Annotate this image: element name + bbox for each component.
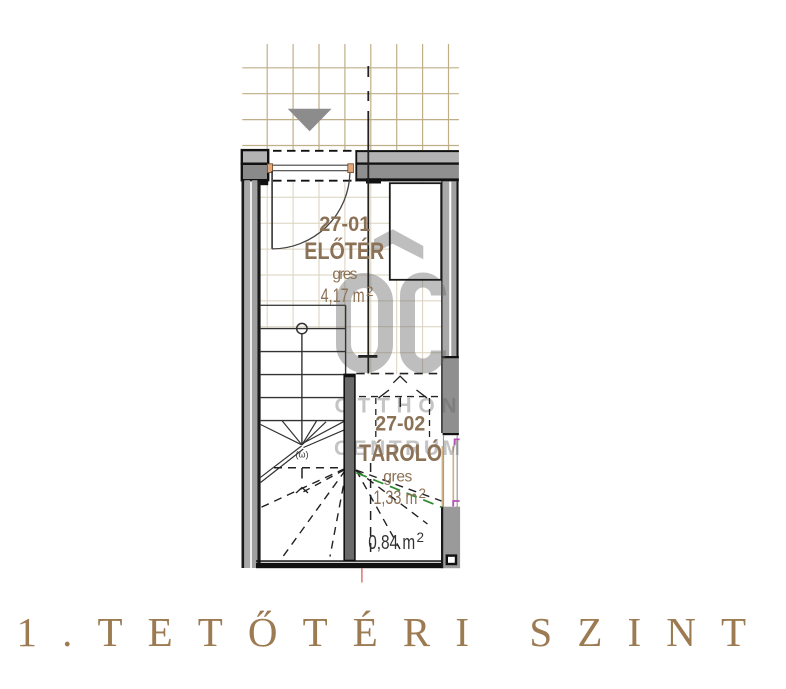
svg-text:0,84 m: 0,84 m	[368, 531, 415, 554]
svg-text:2: 2	[417, 530, 425, 545]
svg-text:(ω): (ω)	[295, 450, 308, 460]
svg-text:4,17 m: 4,17 m	[321, 285, 365, 307]
svg-text:1,33 m: 1,33 m	[373, 487, 417, 509]
svg-text:2: 2	[366, 284, 374, 299]
svg-text:gres: gres	[332, 266, 357, 283]
svg-text:1.TETŐTÉRI SZINT: 1.TETŐTÉRI SZINT	[17, 609, 772, 655]
svg-text:2: 2	[419, 486, 427, 501]
svg-text:27-01: 27-01	[319, 212, 370, 236]
svg-text:ELŐTÉR: ELŐTÉR	[304, 237, 384, 265]
svg-text:TÁROLÓ: TÁROLÓ	[359, 439, 442, 467]
svg-text:gres: gres	[383, 468, 412, 485]
svg-text:27-02: 27-02	[375, 412, 425, 436]
